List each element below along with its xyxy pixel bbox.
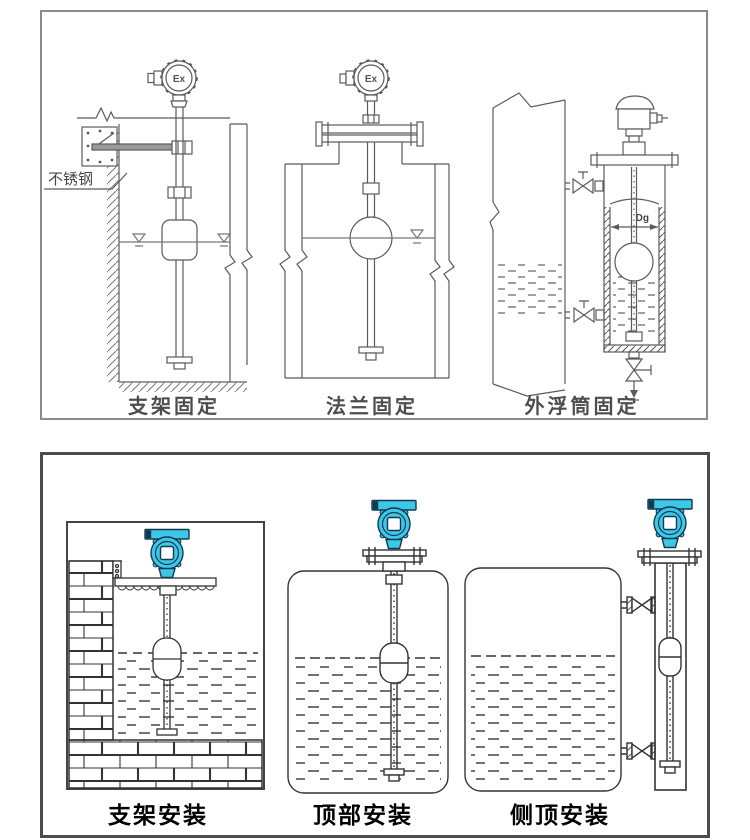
ceiling-line <box>77 108 247 124</box>
tank-liquid <box>496 264 562 316</box>
ex-label: Ex <box>365 74 378 85</box>
external-chamber-fixing-drawing: Dg <box>467 52 712 402</box>
bracket-fixing-drawing: Ex 不锈钢 <box>44 47 294 397</box>
ex-label: Ex <box>173 74 186 85</box>
page: Ex 不锈钢 <box>0 0 750 840</box>
label-flange-fixing: 法兰固定 <box>272 390 472 419</box>
label-side-top-installation: 侧顶安装 <box>460 796 660 830</box>
label-top-installation: 顶部安装 <box>263 796 463 830</box>
label-bracket-installation: 支架安装 <box>58 796 258 830</box>
label-external-chamber-fixing: 外浮筒固定 <box>482 390 682 419</box>
float-ball <box>615 243 653 281</box>
brick-floor <box>69 740 262 788</box>
transmitter-ex-head: Ex <box>340 60 389 123</box>
float <box>659 638 681 676</box>
bracket-installation-drawing <box>66 521 265 790</box>
liquid <box>471 656 615 785</box>
mounting-types-panel: Ex 不锈钢 <box>40 10 708 420</box>
top-installation-drawing <box>283 495 463 795</box>
flange <box>363 547 426 571</box>
float <box>380 643 408 683</box>
lower-valve <box>621 743 655 759</box>
upper-valve <box>621 597 655 613</box>
transmitter-head-icon <box>372 501 416 549</box>
float <box>162 220 197 260</box>
junction-head <box>616 96 668 155</box>
side-top-installation-drawing <box>463 495 711 795</box>
transmitter-ex-head: Ex <box>148 60 197 107</box>
flange <box>316 122 423 146</box>
flange-fixing-drawing: Ex <box>272 47 472 397</box>
process-tank <box>490 93 565 396</box>
dg-label: Dg <box>636 213 649 224</box>
liquid <box>295 658 441 786</box>
transmitter-head-icon <box>648 500 692 548</box>
tank-wall-right <box>225 124 252 382</box>
liquid <box>118 653 258 738</box>
dg-dimension: Dg <box>611 213 658 230</box>
stainless-steel-label: 不锈钢 <box>48 171 93 188</box>
installation-types-panel: 支架安装 顶部安装 侧顶安装 <box>40 452 710 838</box>
lower-valve <box>565 301 604 322</box>
float <box>153 638 181 680</box>
flange <box>638 548 701 566</box>
label-bracket-fixing: 支架固定 <box>74 390 274 419</box>
upper-valve <box>565 172 603 193</box>
